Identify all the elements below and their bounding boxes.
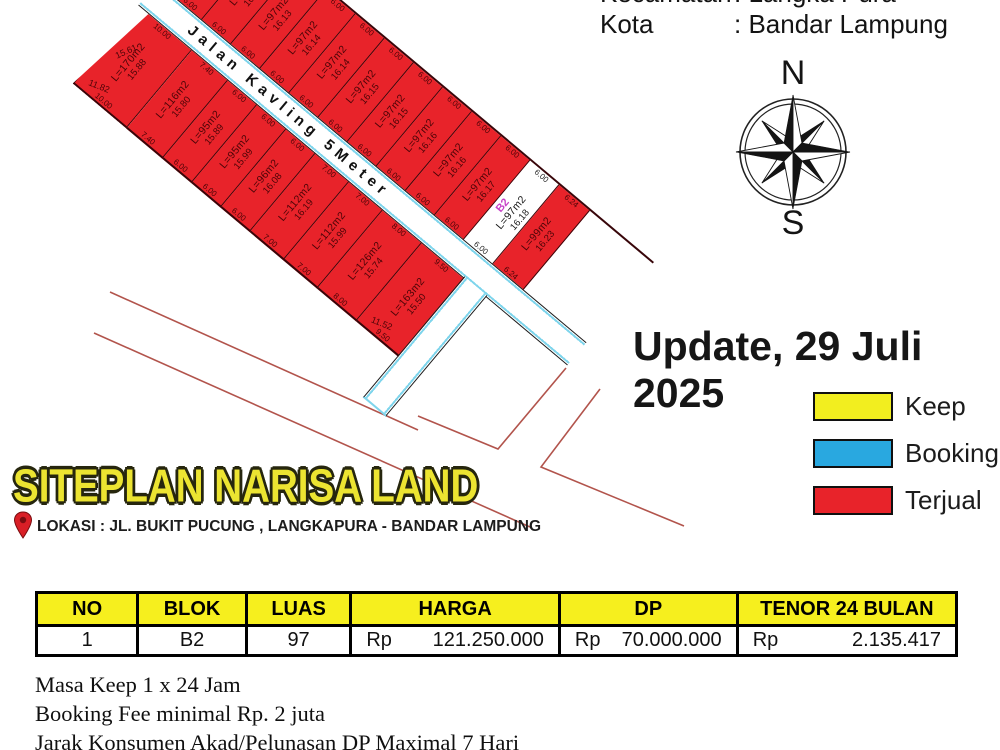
cell-harga: Rp 121.250.000 [351, 626, 560, 656]
plot-width-label: 6.00 [193, 175, 227, 206]
plot-width-label: 6.00 [350, 14, 384, 45]
keep-swatch [813, 392, 893, 421]
booking-label: Booking [905, 438, 999, 469]
price-table-header-row: NO BLOK LUAS HARGA DP TENOR 24 BULAN [37, 593, 957, 626]
keep-label: Keep [905, 391, 966, 422]
col-luas: LUAS [246, 593, 351, 626]
plot-width-label: 6.00 [466, 112, 500, 143]
brand-title: SITEPLAN NARISA LAND [13, 460, 478, 513]
legend-row-keep: Keep [813, 392, 999, 421]
col-no: NO [37, 593, 138, 626]
plot-label: L=126m215.74 [346, 240, 393, 290]
booking-swatch [813, 439, 893, 468]
plot-width-label: 6.00 [408, 63, 442, 94]
harga-currency: Rp [366, 629, 392, 652]
note-line: Masa Keep 1 x 24 Jam [35, 670, 519, 699]
plot-width-label: 6.00 [379, 39, 413, 70]
plot-width-label: 7.40 [128, 120, 169, 156]
cell-no: 1 [37, 626, 138, 656]
price-table: NO BLOK LUAS HARGA DP TENOR 24 BULAN 1 B… [35, 591, 958, 657]
note-line: Jarak Konsumen Akad/Pelunasan DP Maximal… [35, 728, 519, 750]
cell-luas: 97 [246, 626, 351, 656]
col-dp: DP [559, 593, 737, 626]
plot-width-label: 6.00 [164, 150, 198, 181]
kota-row: Kota : Bandar Lampung [600, 9, 948, 40]
dp-currency: Rp [575, 629, 601, 652]
siteplan-map: 6.00L=97m216.136.006.00L=97m216.136.006.… [73, 0, 654, 444]
col-harga: HARGA [351, 593, 560, 626]
tenor-currency: Rp [753, 629, 779, 652]
cell-tenor: Rp 2.135.417 [737, 626, 956, 656]
brand-location: LOKASI : JL. BUKIT PUCUNG , LANGKAPURA -… [37, 518, 541, 536]
siteplan-poster: Kecamatan : Langka Pura Kota : Bandar La… [0, 0, 1000, 750]
plot-width-label: 7.00 [251, 224, 290, 259]
admin-header: Kecamatan : Langka Pura Kota : Bandar La… [600, 0, 948, 40]
legend-row-booking: Booking [813, 439, 999, 468]
kota-label: Kota [600, 9, 734, 40]
cell-blok: B2 [138, 626, 247, 656]
cell-dp: Rp 70.000.000 [559, 626, 737, 656]
plot-width-label: 8.00 [318, 280, 362, 319]
dp-amount: 70.000.000 [622, 629, 722, 652]
kecamatan-label: Kecamatan [600, 0, 734, 9]
plot-width-label: 6.24 [553, 185, 589, 217]
compass-north-label: N [781, 54, 806, 92]
plot-width-label: 6.00 [524, 161, 558, 192]
legend: Keep Booking Terjual [813, 392, 999, 533]
tenor-amount: 2.135.417 [852, 629, 941, 652]
kecamatan-value: : Langka Pura [734, 0, 896, 9]
kota-value: : Bandar Lampung [734, 9, 948, 40]
plot-width-label: 6.00 [222, 199, 256, 230]
col-tenor: TENOR 24 BULAN [737, 593, 956, 626]
terjual-label: Terjual [905, 485, 982, 516]
compass-rose-icon: N S [722, 48, 864, 245]
location-pin-icon [13, 511, 33, 544]
kecamatan-row: Kecamatan : Langka Pura [600, 0, 948, 9]
plot-width-label: 6.00 [495, 136, 529, 167]
plot-width-label: 7.00 [285, 252, 324, 287]
compass-south-label: S [782, 204, 805, 240]
note-line: Booking Fee minimal Rp. 2 juta [35, 699, 519, 728]
plot-width-label: 6.00 [321, 0, 355, 20]
price-table-data-row: 1 B2 97 Rp 121.250.000 Rp 70.000.000 Rp … [37, 626, 957, 656]
col-blok: BLOK [138, 593, 247, 626]
plot-width-label: 6.00 [437, 87, 471, 118]
notes: Masa Keep 1 x 24 Jam Booking Fee minimal… [35, 670, 519, 750]
harga-amount: 121.250.000 [433, 629, 544, 652]
terjual-swatch [813, 486, 893, 515]
legend-row-terjual: Terjual [813, 486, 999, 515]
